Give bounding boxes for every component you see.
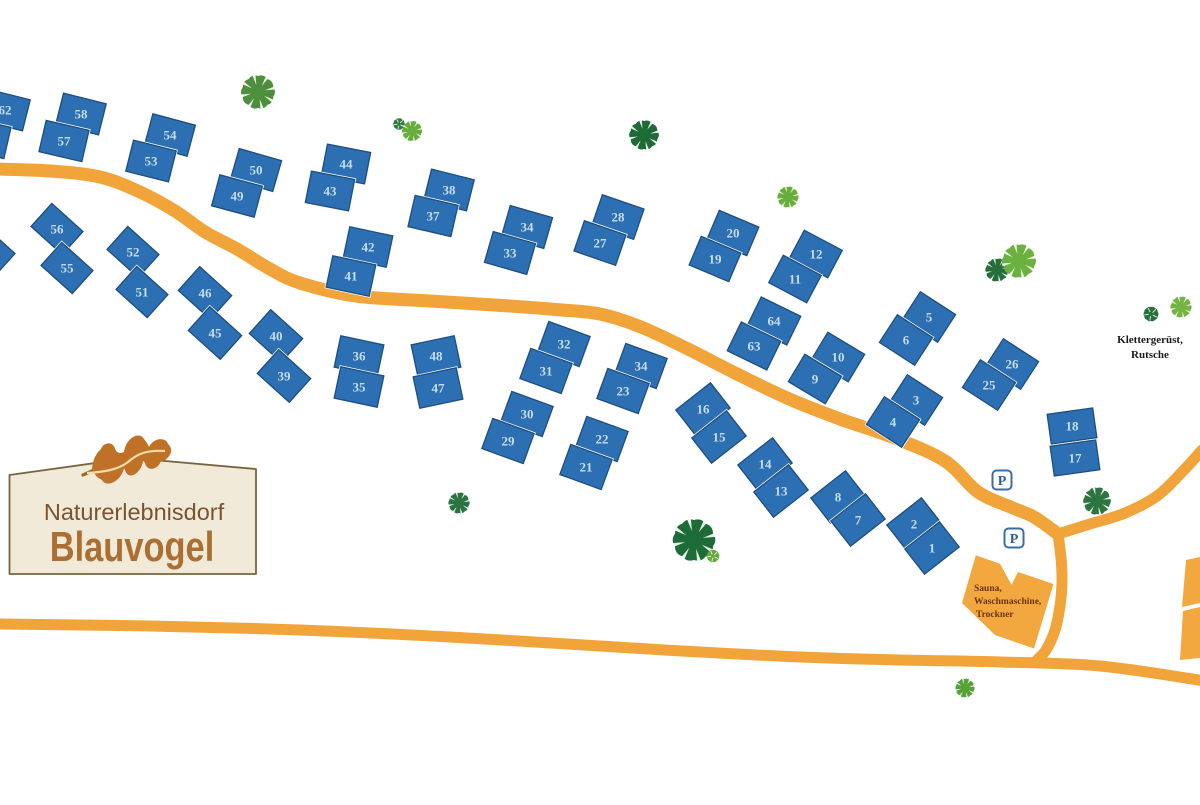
svg-text:48: 48 <box>430 349 444 364</box>
svg-text:47: 47 <box>432 381 446 396</box>
svg-text:4: 4 <box>890 415 897 430</box>
svg-text:49: 49 <box>231 189 245 204</box>
svg-text:Naturerlebnisdorf: Naturerlebnisdorf <box>44 499 225 525</box>
svg-text:12: 12 <box>810 247 823 262</box>
svg-text:29: 29 <box>502 434 516 449</box>
svg-text:17: 17 <box>1069 451 1083 466</box>
svg-text:32: 32 <box>558 337 571 352</box>
svg-text:9: 9 <box>812 372 819 387</box>
svg-text:8: 8 <box>835 490 842 505</box>
svg-text:46: 46 <box>199 286 213 301</box>
svg-text:25: 25 <box>983 378 997 393</box>
svg-text:41: 41 <box>345 269 358 284</box>
svg-text:3: 3 <box>913 393 920 408</box>
svg-text:55: 55 <box>61 261 75 276</box>
svg-text:Sauna,: Sauna, <box>974 584 1002 594</box>
svg-text:Trockner: Trockner <box>976 610 1014 620</box>
svg-text:36: 36 <box>353 349 367 364</box>
svg-text:7: 7 <box>855 513 862 528</box>
svg-text:63: 63 <box>748 339 762 354</box>
svg-text:21: 21 <box>580 460 593 475</box>
svg-text:50: 50 <box>250 163 263 178</box>
svg-text:31: 31 <box>540 364 553 379</box>
svg-text:Rutsche: Rutsche <box>1131 349 1169 361</box>
svg-text:P: P <box>1010 532 1019 547</box>
svg-text:13: 13 <box>775 484 789 499</box>
svg-text:19: 19 <box>709 252 723 267</box>
svg-text:30: 30 <box>521 407 534 422</box>
svg-text:23: 23 <box>617 384 631 399</box>
svg-text:42: 42 <box>362 240 375 255</box>
svg-text:35: 35 <box>353 380 367 395</box>
svg-text:26: 26 <box>1006 357 1020 372</box>
svg-text:34: 34 <box>635 359 649 374</box>
svg-text:5: 5 <box>926 310 933 325</box>
svg-text:10: 10 <box>832 350 845 365</box>
svg-text:11: 11 <box>789 272 801 287</box>
svg-text:Waschmaschine,: Waschmaschine, <box>974 597 1042 607</box>
svg-text:64: 64 <box>768 314 782 329</box>
svg-text:54: 54 <box>164 128 178 143</box>
svg-text:15: 15 <box>713 430 727 445</box>
svg-text:34: 34 <box>521 220 535 235</box>
svg-text:22: 22 <box>596 432 609 447</box>
svg-text:Klettergerüst,: Klettergerüst, <box>1117 334 1183 346</box>
svg-text:2: 2 <box>911 517 918 532</box>
svg-text:20: 20 <box>727 226 740 241</box>
svg-text:18: 18 <box>1066 419 1080 434</box>
svg-text:28: 28 <box>612 210 626 225</box>
svg-text:43: 43 <box>324 184 338 199</box>
svg-text:57: 57 <box>58 134 72 149</box>
svg-text:Blauvogel: Blauvogel <box>50 524 215 571</box>
svg-text:45: 45 <box>209 326 223 341</box>
svg-text:40: 40 <box>270 329 283 344</box>
svg-text:39: 39 <box>278 369 292 384</box>
svg-text:37: 37 <box>427 209 441 224</box>
svg-text:27: 27 <box>594 236 608 251</box>
svg-text:P: P <box>998 474 1007 489</box>
svg-text:56: 56 <box>51 222 65 237</box>
svg-text:38: 38 <box>443 183 457 198</box>
svg-text:16: 16 <box>697 402 711 417</box>
svg-text:58: 58 <box>75 107 89 122</box>
svg-text:1: 1 <box>929 541 936 556</box>
svg-text:14: 14 <box>759 457 773 472</box>
svg-text:6: 6 <box>903 333 910 348</box>
svg-text:52: 52 <box>127 245 140 260</box>
svg-text:53: 53 <box>145 154 159 169</box>
svg-text:44: 44 <box>340 157 354 172</box>
svg-text:62: 62 <box>0 103 12 118</box>
svg-text:51: 51 <box>136 285 149 300</box>
svg-text:33: 33 <box>504 246 518 261</box>
